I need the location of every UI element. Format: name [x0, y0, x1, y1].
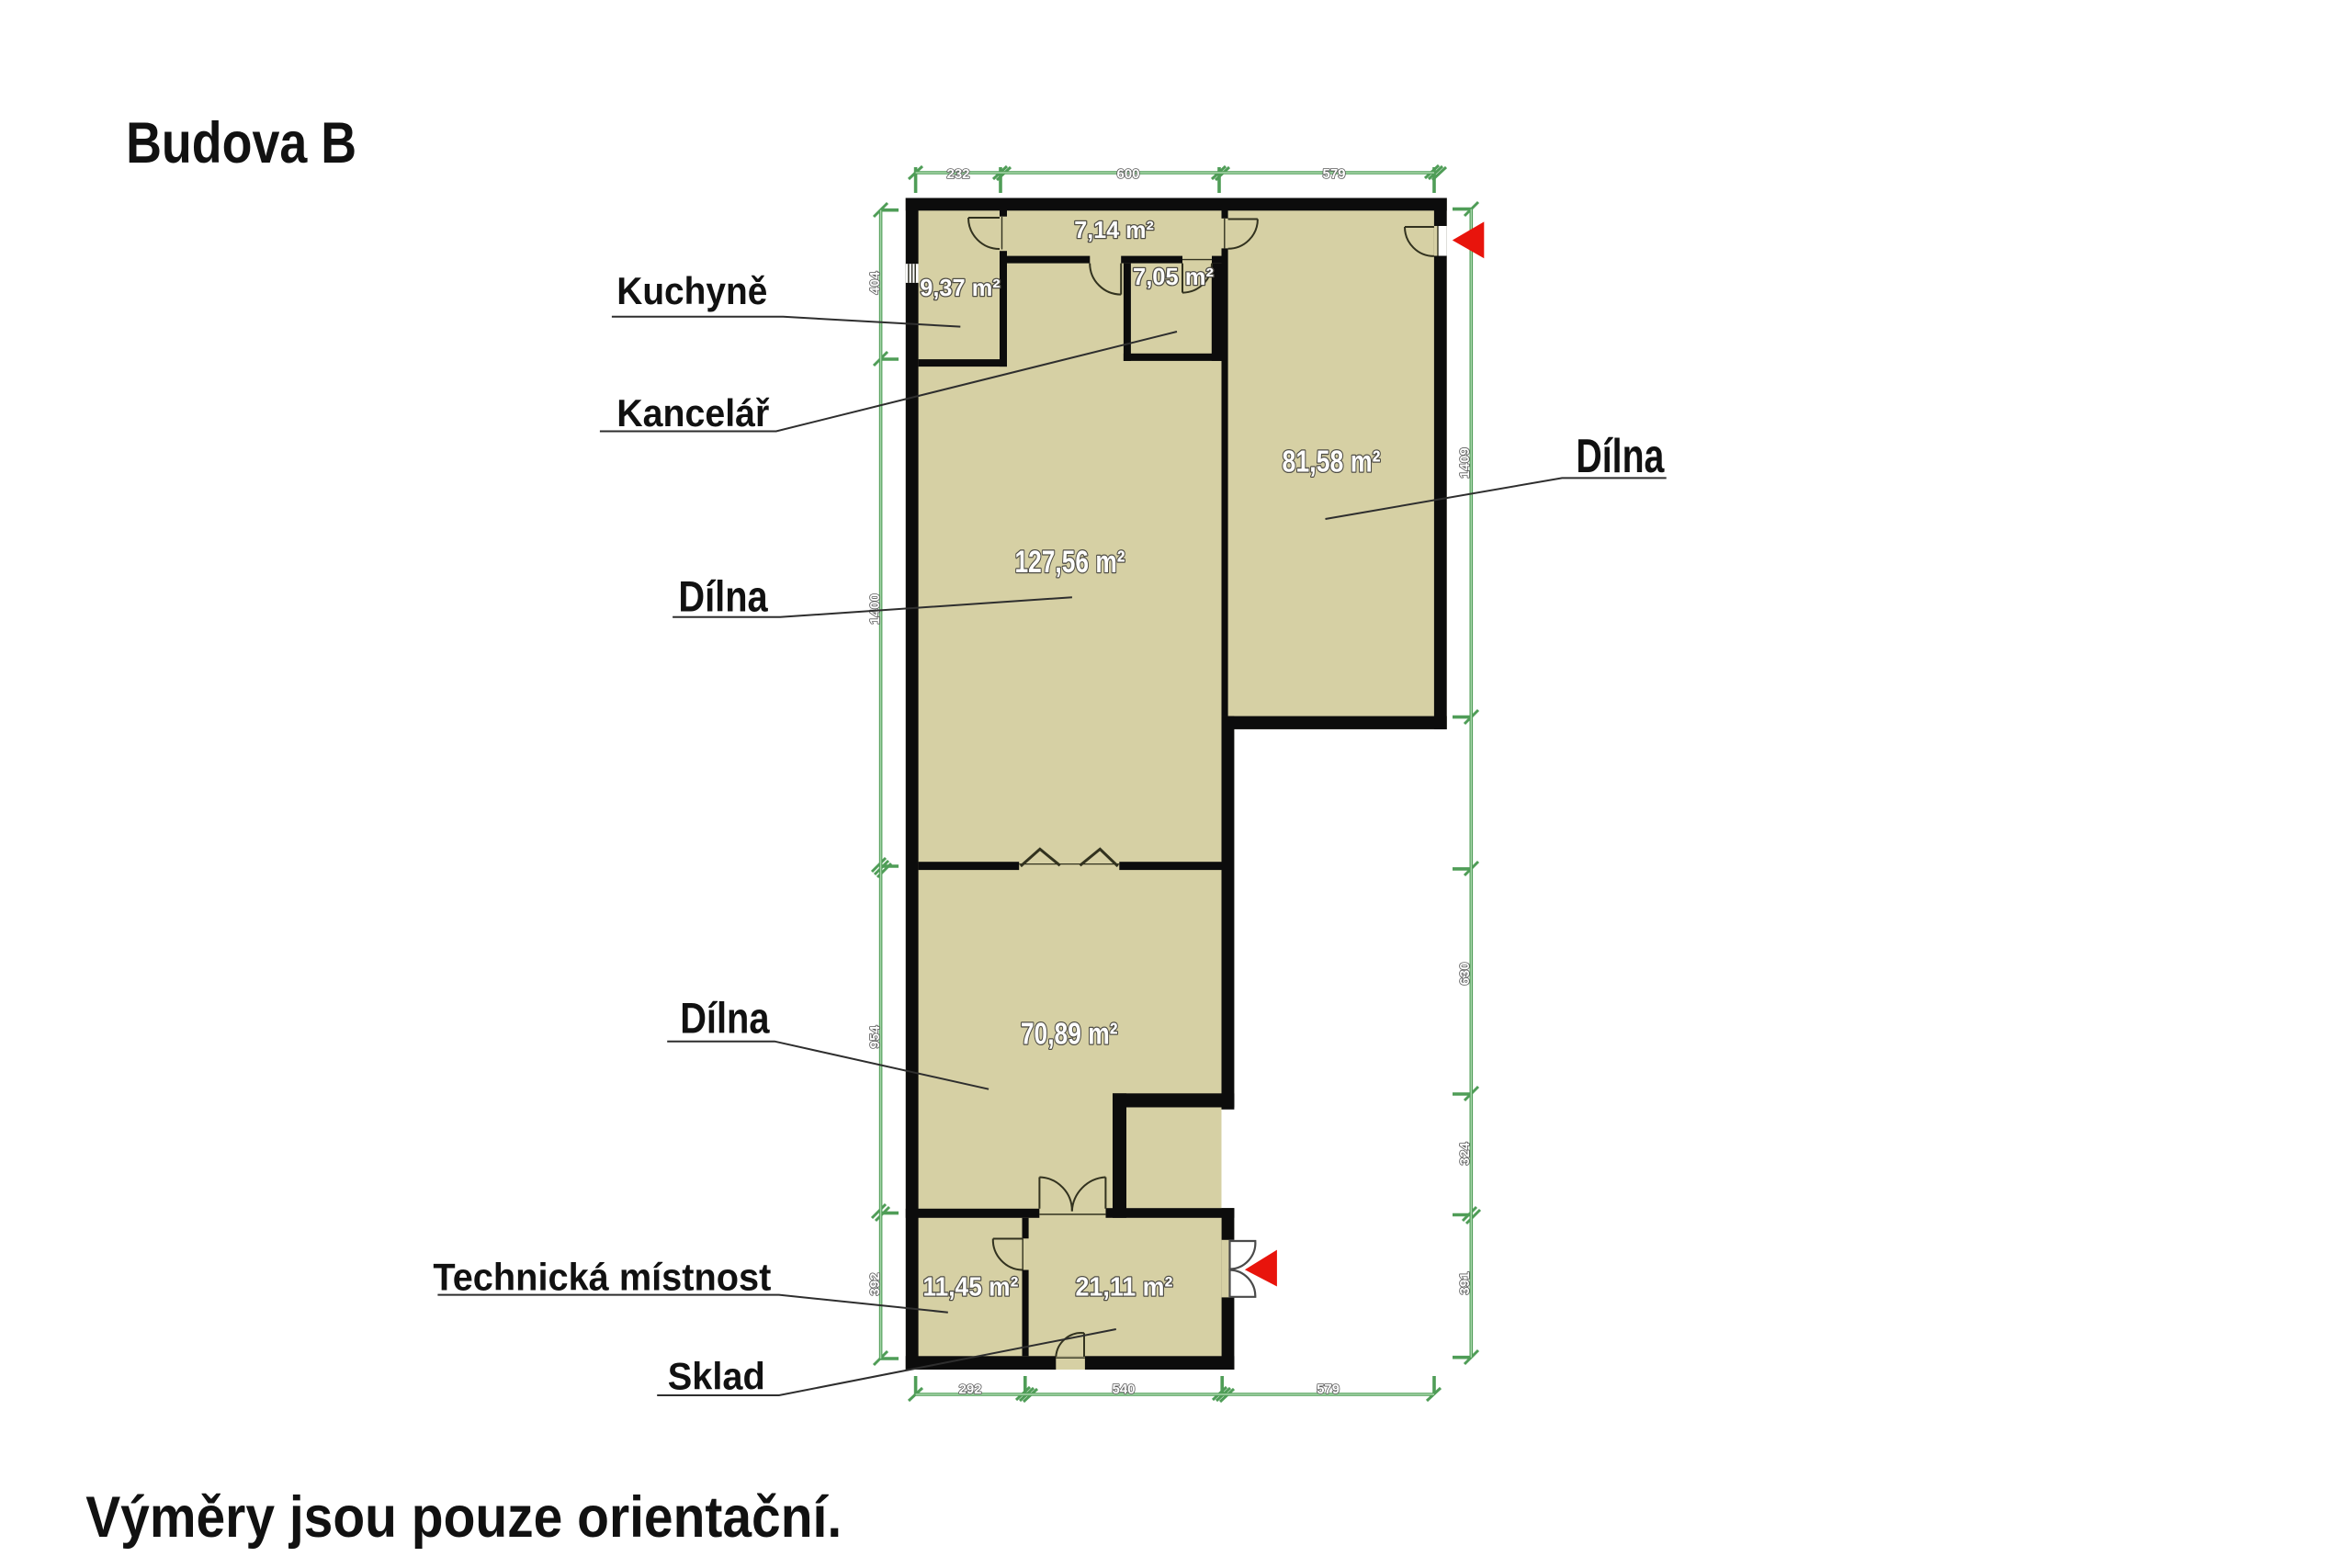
- svg-text:1400: 1400: [867, 593, 883, 624]
- svg-text:391: 391: [1457, 1271, 1473, 1294]
- svg-text:Technická místnost: Technická místnost: [433, 1256, 771, 1299]
- svg-text:11,45 m²: 11,45 m²: [922, 1273, 1018, 1303]
- svg-text:954: 954: [867, 1025, 883, 1049]
- svg-text:324: 324: [1457, 1142, 1473, 1166]
- svg-text:7,14 m²: 7,14 m²: [1074, 216, 1154, 243]
- svg-text:127,56 m²: 127,56 m²: [1015, 545, 1125, 580]
- svg-text:600: 600: [1116, 166, 1139, 182]
- svg-text:Kancelář: Kancelář: [616, 391, 770, 434]
- svg-text:Dílna: Dílna: [680, 993, 770, 1042]
- svg-text:232: 232: [946, 166, 969, 182]
- svg-text:81,58 m²: 81,58 m²: [1283, 445, 1381, 479]
- svg-text:Dílna: Dílna: [678, 572, 768, 621]
- svg-text:70,89 m²: 70,89 m²: [1021, 1016, 1118, 1050]
- svg-text:1409: 1409: [1457, 447, 1473, 478]
- svg-text:292: 292: [958, 1382, 981, 1397]
- svg-text:579: 579: [1322, 166, 1345, 182]
- svg-text:579: 579: [1317, 1382, 1340, 1397]
- svg-text:392: 392: [867, 1272, 883, 1295]
- svg-text:Sklad: Sklad: [668, 1354, 765, 1397]
- svg-text:630: 630: [1457, 962, 1473, 985]
- svg-text:7,05 m²: 7,05 m²: [1133, 263, 1214, 290]
- svg-text:Budova B: Budova B: [126, 111, 356, 175]
- svg-text:9,37 m²: 9,37 m²: [920, 274, 1001, 301]
- svg-text:540: 540: [1112, 1382, 1135, 1397]
- svg-text:21,11 m²: 21,11 m²: [1076, 1273, 1173, 1303]
- svg-text:Výměry jsou pouze orientační.: Výměry jsou pouze orientační.: [85, 1485, 842, 1550]
- svg-text:Kuchyně: Kuchyně: [616, 269, 767, 312]
- svg-text:404: 404: [867, 271, 883, 295]
- svg-text:Dílna: Dílna: [1576, 430, 1665, 483]
